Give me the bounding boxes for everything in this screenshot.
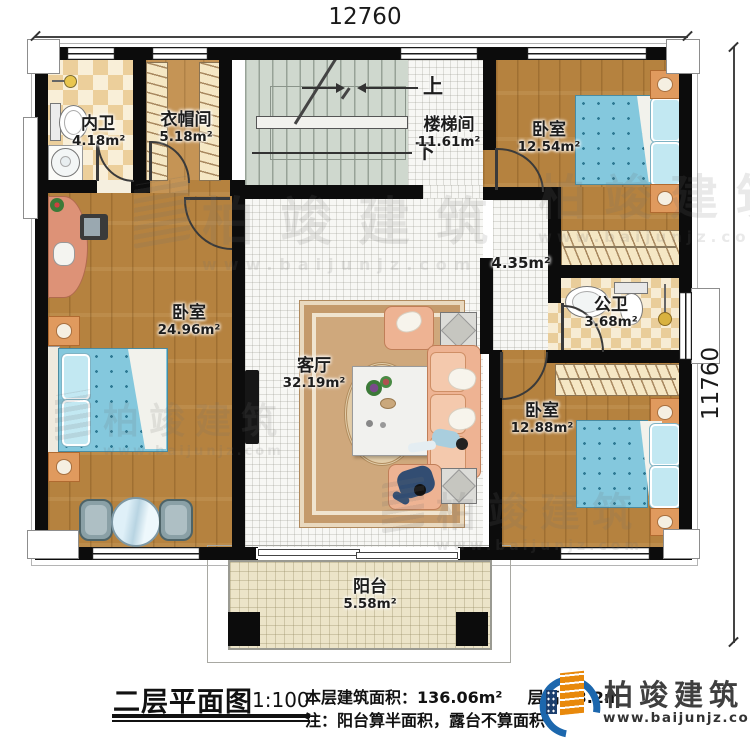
desk-monitor-screen <box>84 218 100 236</box>
stair-up-arrow-line2 <box>366 87 418 89</box>
bedroomtr-nightstand-top <box>650 70 680 99</box>
bathroom-inner-door-patch <box>97 180 131 193</box>
door-leaf-cloakroom <box>149 141 152 181</box>
wall-bedroomtr-west-upper <box>483 60 496 150</box>
room-name: 内卫 <box>72 116 124 134</box>
wall-bedroomleft-living <box>232 190 245 548</box>
pier-top-right <box>666 39 700 74</box>
room-area: 12.54m² <box>515 140 583 154</box>
room-area: 5.18m² <box>152 130 220 144</box>
stair-up-arrowhead <box>336 83 345 93</box>
label-cloakroom: 衣帽间 5.18m² <box>152 112 220 144</box>
bedroombr-wardrobe <box>555 364 681 396</box>
desk-bin <box>53 242 75 266</box>
table-flowers-2 <box>380 376 392 388</box>
room-area: 5.58m² <box>336 597 404 611</box>
wall-hall-living <box>480 258 493 354</box>
plan-note-text: 注：阳台算半面积，露台不算面积 <box>305 707 545 731</box>
bathroom-public-door-patch <box>548 303 561 350</box>
label-bedroom-left: 卧室 24.96m² <box>155 305 223 337</box>
table-cup-1 <box>366 420 373 427</box>
balcony-slider-panel-left <box>258 549 360 556</box>
wall-exterior-bottom-b <box>200 547 258 560</box>
balcony-post-left <box>228 612 260 646</box>
room-area: 24.96m² <box>155 323 223 337</box>
pier-bottom-left <box>27 530 79 559</box>
room-name: 卧室 <box>515 122 583 140</box>
door-leaf-bedroom-bottomright <box>500 352 503 398</box>
brand-name: 柏竣建筑 <box>604 672 744 714</box>
tea-chair-right <box>159 499 193 541</box>
person-on-chair-head <box>414 484 426 496</box>
wall-bath-cloak <box>133 60 146 180</box>
window-stairwell <box>400 47 478 60</box>
nightstand-ornament <box>657 77 673 92</box>
bedroombr-mattress <box>576 420 648 508</box>
room-area: 12.88m² <box>505 421 579 435</box>
label-bath-inner: 内卫 4.18m² <box>72 116 124 148</box>
room-name: 公卫 <box>578 297 644 315</box>
wall-hall-east <box>548 187 561 303</box>
desk-plant <box>50 198 64 212</box>
window-bedroom-bottomright <box>560 547 650 560</box>
label-bedroom-topright: 卧室 12.54m² <box>515 122 583 154</box>
paper-holder <box>64 75 77 88</box>
sink-basin-inner-dot <box>60 156 71 167</box>
tea-chair-left <box>79 499 113 541</box>
room-name: 卧室 <box>505 403 579 421</box>
brand-logo <box>540 668 598 734</box>
table-cup-2 <box>380 422 386 428</box>
room-area: 4.18m² <box>72 134 124 148</box>
room-name: 衣帽间 <box>152 112 220 130</box>
bedroomtr-pillow-2 <box>651 142 681 186</box>
window-bath-public <box>679 292 692 360</box>
side-table-bottom <box>441 468 477 504</box>
wall-exterior-bottom-c <box>458 547 560 560</box>
bedroom-left-door-patch <box>188 180 230 196</box>
nightstand-ornament <box>56 323 73 339</box>
window-cloakroom <box>152 47 208 60</box>
wall-bathpublic-north <box>561 265 692 278</box>
side-table-top <box>440 312 477 349</box>
stair-up-arrowhead2 <box>357 83 366 93</box>
bedroomtr-wardrobe-rail <box>564 246 676 248</box>
door-leaf-bath-public <box>561 303 564 350</box>
brand-site: www.baijunjz.com <box>603 710 750 726</box>
door-leaf-bedroom-topright <box>495 148 498 190</box>
label-bedroom-bottomright: 卧室 12.88m² <box>505 403 579 435</box>
bath-accessory-line <box>664 284 666 314</box>
label-hallway: 4.35m² <box>488 256 554 272</box>
dimension-top-text: 12760 <box>300 4 430 30</box>
window-bedroom-topright <box>527 47 647 60</box>
pier-bottom-right <box>663 529 700 559</box>
hallway-floor <box>493 200 548 352</box>
label-bath-public: 公卫 3.68m² <box>578 297 644 329</box>
pier-top-left <box>27 39 60 74</box>
chair-seat <box>165 505 187 535</box>
stair-up-label: 上 <box>420 76 446 97</box>
label-balcony: 阳台 5.58m² <box>336 579 404 611</box>
bedroomleft-nightstand-bottom <box>48 452 80 482</box>
room-name: 楼梯间 <box>415 117 483 135</box>
stair-up-text: 上 <box>420 76 446 97</box>
chair-seat <box>85 505 107 535</box>
stair-down-line <box>252 152 412 154</box>
stair-handrail <box>256 116 408 129</box>
window-bath-inner <box>67 47 115 60</box>
room-name: 卧室 <box>155 305 223 323</box>
side-table-ornament <box>442 469 476 503</box>
wall-bath-south-a <box>48 180 97 193</box>
nightstand-ornament <box>56 459 73 475</box>
bedroomtr-pillow-1 <box>651 98 681 142</box>
balcony-post-right <box>456 612 488 646</box>
window-bedroom-left <box>92 547 200 560</box>
plan-title-underline-1 <box>112 714 310 718</box>
room-area: 11.61m² <box>415 135 483 149</box>
label-stairwell: 楼梯间 11.61m² <box>415 117 483 149</box>
bath-accessory <box>658 312 672 326</box>
stair-passage-floor <box>423 185 483 199</box>
dimension-top-line <box>35 36 688 38</box>
wall-cloak-stair <box>219 60 232 180</box>
nightstand-ornament <box>657 191 673 206</box>
room-area: 4.35m² <box>488 256 554 272</box>
floor-plan-canvas: 上 下 <box>0 0 750 742</box>
label-living: 客厅 32.19m² <box>280 358 348 390</box>
room-name: 客厅 <box>280 358 348 376</box>
tv-panel <box>245 370 259 444</box>
plan-title-underline-2 <box>112 720 310 722</box>
sill-left <box>23 117 38 219</box>
bedroombr-pillow-2 <box>650 466 680 508</box>
bedroombr-pillow-1 <box>650 424 680 466</box>
paper-holder-line <box>52 80 64 82</box>
logo-building-navy <box>546 690 557 714</box>
room-name: 阳台 <box>336 579 404 597</box>
person-on-sofa-head <box>456 438 468 450</box>
tea-table <box>111 497 161 547</box>
plan-area-text: 本层建筑面积：136.06m² <box>305 688 502 707</box>
dimension-right-text: 11760 <box>698 320 724 420</box>
bedroomleft-pillow-1 <box>62 354 90 400</box>
plan-scale: 1:100 <box>252 688 310 712</box>
bedroomtr-wardrobe <box>561 230 681 267</box>
room-area: 3.68m² <box>578 315 644 329</box>
bedroombr-wardrobe-rail <box>558 378 676 380</box>
balcony-slider-panel-right <box>356 552 458 559</box>
door-leaf-bedroom-left <box>184 197 230 200</box>
nightstand-ornament <box>657 405 673 420</box>
dimension-right-line <box>733 47 735 643</box>
bedroomtr-nightstand-bottom <box>650 184 680 213</box>
bedroomleft-nightstand-top <box>48 316 80 346</box>
stair-up-arrow-line <box>302 87 336 89</box>
bedroomleft-pillow-2 <box>62 400 90 446</box>
table-item <box>380 398 396 409</box>
room-area: 32.19m² <box>280 376 348 390</box>
logo-building-orange <box>560 671 584 716</box>
wall-stair-south <box>232 185 423 199</box>
nightstand-ornament <box>657 515 673 530</box>
side-table-ornament <box>441 313 476 348</box>
